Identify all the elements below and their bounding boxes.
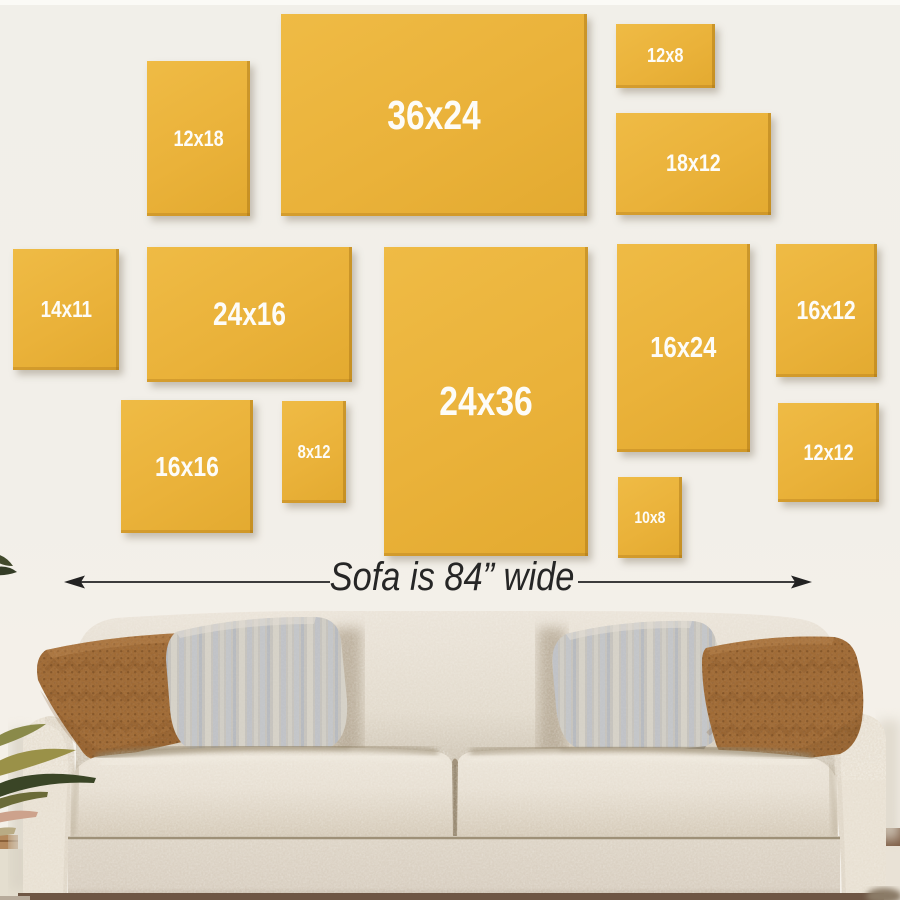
svg-text:Sofa is 84” wide: Sofa is 84” wide — [330, 554, 575, 599]
